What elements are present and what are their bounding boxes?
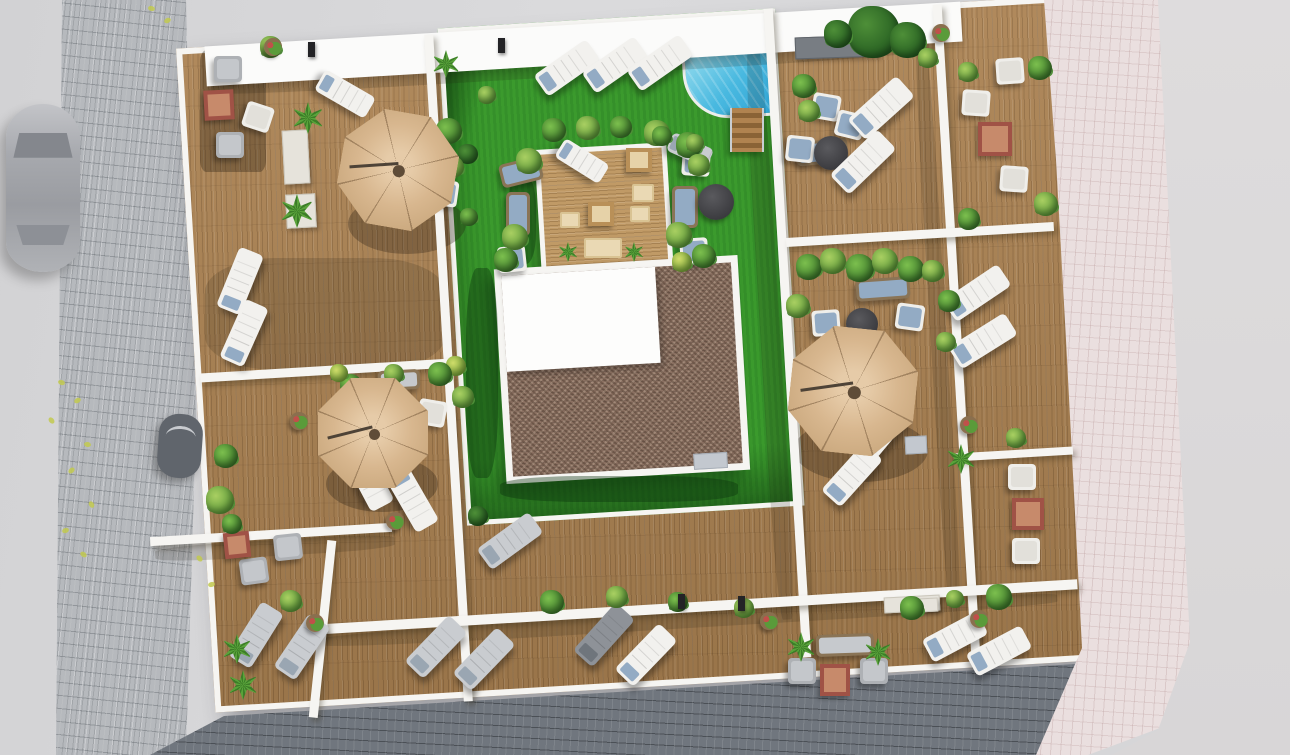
ladder [730,108,764,152]
aerial-render-scene [0,0,1290,755]
pot [290,412,308,430]
plant [792,74,816,98]
leaf [47,416,55,425]
lounger [847,76,915,141]
leaf [57,379,65,386]
shade [466,268,498,478]
plant [666,222,692,248]
armchair [785,135,816,164]
leaf [207,581,215,588]
car [6,104,80,272]
plant [820,248,846,274]
cushion [632,184,654,202]
cushion [630,206,650,222]
plant [1028,56,1052,80]
plant [936,332,956,352]
lounger [554,138,610,184]
armchair [995,57,1025,85]
table-red [588,202,614,226]
plant [280,590,302,612]
table-red [626,148,652,172]
leaf [79,550,88,558]
vent [905,435,928,454]
pot [960,416,978,434]
armchair [216,132,244,158]
plant [652,126,672,146]
plant [672,252,692,272]
table-round [698,184,734,220]
plant [918,48,938,68]
plant [798,100,820,122]
pot [386,512,404,530]
table-red [820,664,850,696]
wall [786,222,1054,247]
pot [760,612,778,630]
plant [214,444,238,468]
armchair [961,89,991,117]
pot [264,38,282,56]
leaf [163,17,171,24]
plant [786,294,810,318]
pot [970,610,988,628]
plant [516,148,542,174]
plant [606,586,628,608]
plant [938,290,960,312]
pot [306,614,324,632]
leaf [88,500,96,509]
counter [282,129,311,184]
shade [500,476,738,502]
lamp [498,38,505,53]
plant [610,116,632,138]
plant [688,154,710,176]
plant [1034,192,1058,216]
wall [955,447,1073,462]
armchair [999,165,1029,193]
plant [502,224,528,250]
armchair [894,302,925,332]
armchair [273,533,304,562]
plant [206,486,234,514]
leaf [67,466,76,474]
plant [922,260,944,282]
lounger [614,623,677,687]
table-red [1012,498,1044,530]
lamp [678,594,685,609]
plant [692,244,716,268]
plant [452,386,474,408]
leaf [84,441,92,447]
armchair [788,658,816,684]
pot [932,24,950,42]
plant [222,514,242,534]
plant [946,590,964,608]
table-red [978,122,1012,156]
plant [958,208,980,230]
plant [1006,428,1026,448]
plant [872,248,898,274]
plant [460,208,478,226]
table-red [223,531,252,560]
plant [330,364,348,382]
leaf [73,397,82,405]
plant [846,254,874,282]
lamp [308,42,315,57]
plant [576,116,600,140]
plant [900,596,924,620]
table-red [203,89,235,121]
armchair [214,56,242,82]
leaf [61,527,69,534]
plant [958,62,978,82]
palm [228,670,258,700]
sofa [816,633,875,657]
armchair [1012,538,1040,564]
armchair [1008,464,1036,490]
plant [478,86,496,104]
armchair [860,658,888,684]
palm [558,242,578,262]
plant [540,590,564,614]
plant [686,134,704,152]
plant [796,254,822,280]
parasol [318,378,428,488]
plant [986,584,1012,610]
cushion [584,238,622,258]
scene-objects-layer [0,0,1290,755]
armchair [238,556,269,586]
plant [898,256,924,282]
cushion [560,212,580,228]
plant [428,362,452,386]
plant [494,248,518,272]
palm [624,242,644,262]
carhalf [156,413,204,480]
lamp [738,596,745,611]
leaf [147,5,155,12]
plant [468,506,488,526]
plant [824,20,852,48]
plant [542,118,566,142]
